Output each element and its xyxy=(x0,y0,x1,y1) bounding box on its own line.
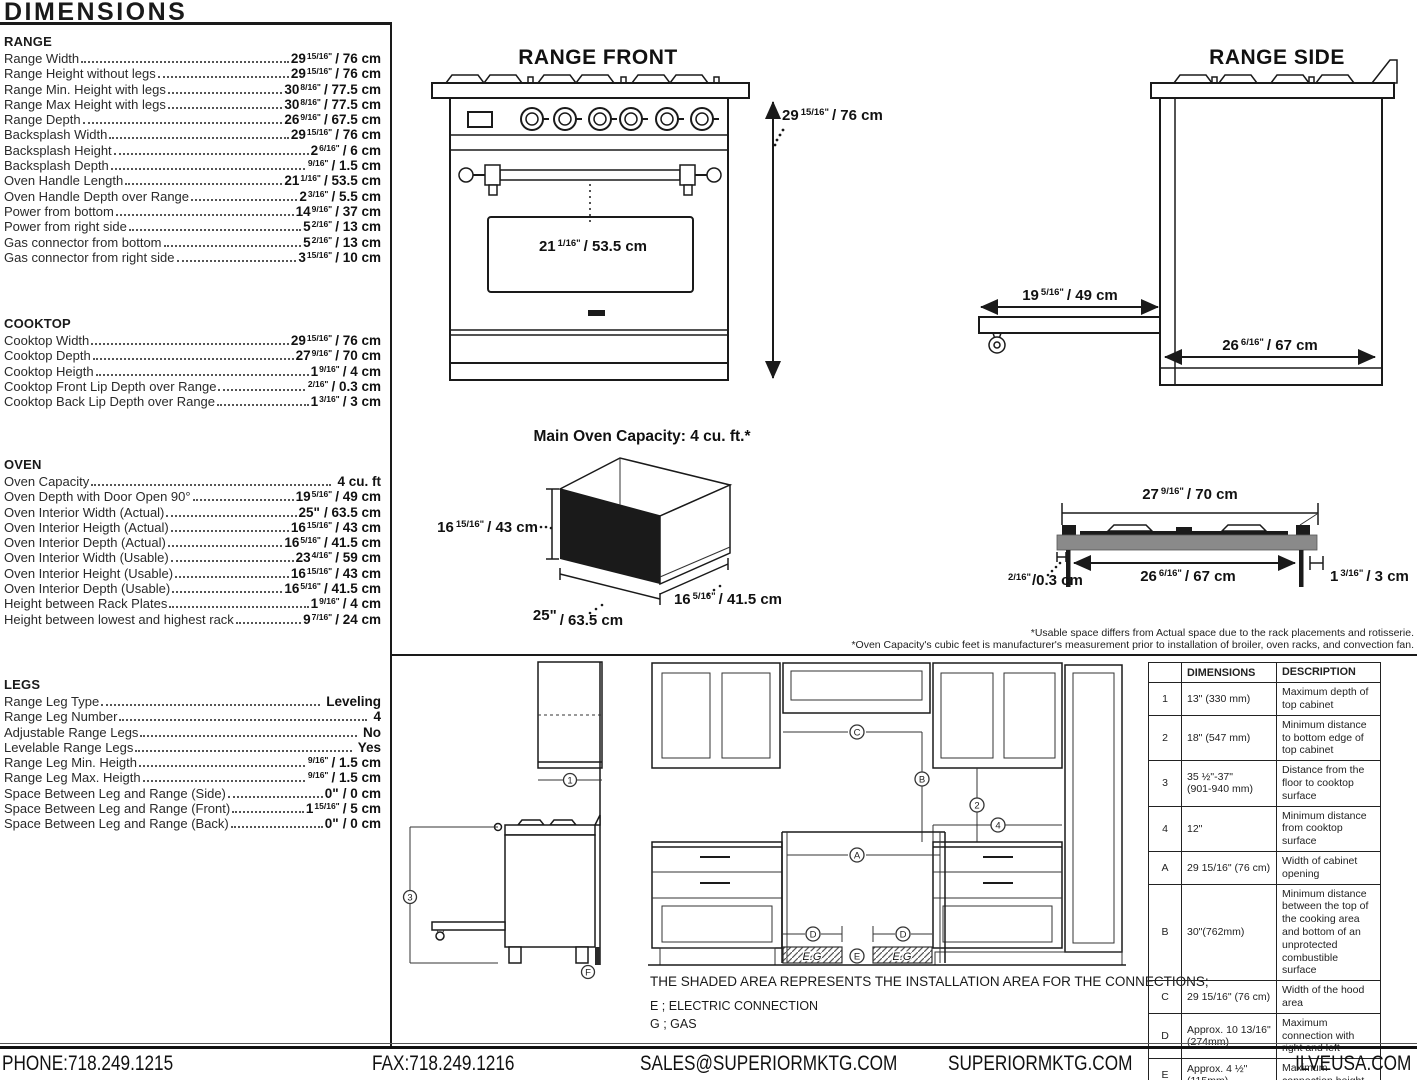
row-id: D xyxy=(1149,1013,1182,1058)
dotted-leader xyxy=(236,622,301,624)
spec-value: 211/16"/ 53.5 cm xyxy=(284,173,381,188)
spec-label: Space Between Leg and Range (Front) xyxy=(4,801,230,816)
row-dimension: Approx. 10 13/16"(274mm) xyxy=(1182,1013,1277,1058)
spec-value: 25"/ 63.5 cm xyxy=(299,505,381,520)
spec-value: 165/16"/ 41.5 cm xyxy=(284,581,381,596)
leader-dots xyxy=(774,129,785,147)
legs-specs: LEGS Range Leg Type Leveling Range Leg N… xyxy=(4,677,381,832)
marker-1: 1 xyxy=(567,776,572,787)
spec-row: Backsplash Depth 9/16"/ 1.5 cm xyxy=(4,158,381,173)
spec-value: 165/16"/ 41.5 cm xyxy=(284,535,381,550)
spec-value: 0"/ 0 cm xyxy=(325,816,381,831)
oven-capacity-diagram: Main Oven Capacity: 4 cu. ft.* 1615/16"/… xyxy=(420,422,810,627)
range-side-icon xyxy=(432,815,600,963)
oven-specs: OVEN Oven Capacity 4 cu. ft Oven Depth w… xyxy=(4,457,381,627)
table-row: A 29 15/16" (76 cm) Width of cabinet ope… xyxy=(1149,851,1381,884)
spec-label: Cooktop Width xyxy=(4,333,89,348)
spec-label: Range Depth xyxy=(4,112,81,127)
dotted-leader xyxy=(177,260,297,262)
spec-value: Yes xyxy=(354,740,381,755)
spec-value: 195/16"/ 49 cm xyxy=(296,489,381,504)
dotted-leader xyxy=(168,107,282,109)
spec-label: Power from right side xyxy=(4,219,127,234)
spec-label: Levelable Range Legs xyxy=(4,740,133,755)
table-row: 2 18" (547 mm) Minimum distance to botto… xyxy=(1149,715,1381,760)
spec-label: Range Leg Type xyxy=(4,694,99,709)
spec-label: Backsplash Depth xyxy=(4,158,109,173)
spec-label: Range Width xyxy=(4,51,79,66)
oven-width-label: 25"/ 63.5 cm xyxy=(533,607,623,629)
spec-label: Backsplash Width xyxy=(4,127,107,142)
spec-label: Height between Rack Plates xyxy=(4,596,167,611)
range-front-diagram: RANGE FRONT xyxy=(400,38,905,390)
dotted-leader xyxy=(135,750,351,752)
dotted-leader xyxy=(101,704,320,706)
spec-label: Range Leg Number xyxy=(4,709,117,724)
spec-value: 269/16"/ 67.5 cm xyxy=(284,112,381,127)
spec-row: Cooktop Depth 279/16"/ 70 cm xyxy=(4,348,381,363)
spec-row: Power from bottom 149/16"/ 37 cm xyxy=(4,204,381,219)
dotted-leader xyxy=(91,343,289,345)
dotted-leader xyxy=(168,92,282,94)
marker-3: 3 xyxy=(407,893,412,904)
dotted-leader xyxy=(166,515,296,517)
spec-value: 315/16"/ 10 cm xyxy=(298,250,381,265)
spec-row: Oven Capacity 4 cu. ft xyxy=(4,474,381,489)
row-id: E xyxy=(1149,1059,1182,1080)
handle-length-label: 211/16"/ 53.5 cm xyxy=(539,238,647,255)
id-column-header xyxy=(1149,663,1182,683)
front-lip-mark xyxy=(1057,552,1066,562)
dotted-leader xyxy=(193,499,294,501)
row-dimension: 35 ½"-37"(901-940 mm) xyxy=(1182,761,1277,806)
spec-value: 9/16"/ 1.5 cm xyxy=(307,158,381,173)
installation-note: THE SHADED AREA REPRESENTS THE INSTALLAT… xyxy=(650,974,1209,989)
marker-B: B xyxy=(919,775,925,786)
spec-list: Range Width 2915/16"/ 76 cm Range Height… xyxy=(4,51,381,265)
cooktop-specs: COOKTOP Cooktop Width 2915/16"/ 76 cm Co… xyxy=(4,316,381,409)
oven-depth-label: 165/16"/ 41.5 cm xyxy=(674,591,782,608)
section-heading: OVEN xyxy=(4,457,381,472)
door-open-label: 195/16"/ 49 cm xyxy=(1022,287,1118,304)
left-base-cabinet xyxy=(652,842,782,965)
oven-capacity-title: Main Oven Capacity: 4 cu. ft.* xyxy=(533,428,751,445)
dotted-leader xyxy=(171,530,289,532)
spec-label: Range Leg Min. Heigth xyxy=(4,755,137,770)
marker-D-left: D xyxy=(810,930,817,941)
spec-value: 97/16"/ 24 cm xyxy=(303,612,381,627)
table-row: B 30"(762mm) Minimum distance between th… xyxy=(1149,884,1381,981)
row-id: B xyxy=(1149,884,1182,981)
horizontal-divider xyxy=(390,654,1417,656)
back-lip-label: 13/16"/ 3 cm xyxy=(1330,568,1409,585)
dotted-leader xyxy=(114,153,309,155)
spec-label: Oven Interior Depth (Actual) xyxy=(4,535,166,550)
spec-label: Gas connector from right side xyxy=(4,250,175,265)
dotted-leader xyxy=(139,765,305,767)
legend-electric: E ; ELECTRIC CONNECTION xyxy=(650,999,818,1013)
spec-value: 13/16"/ 3 cm xyxy=(311,394,381,409)
row-dimension: 13" (330 mm) xyxy=(1182,683,1277,716)
burner-grates-icon xyxy=(1174,75,1354,83)
spec-row: Oven Interior Depth (Actual) 165/16"/ 41… xyxy=(4,535,381,550)
dotted-leader xyxy=(140,735,357,737)
spec-value: No xyxy=(359,725,381,740)
spec-label: Range Leg Max. Heigth xyxy=(4,770,141,785)
table-row: C 29 15/16" (76 cm) Width of the hood ar… xyxy=(1149,981,1381,1014)
spec-value: 52/16"/ 13 cm xyxy=(303,235,381,250)
footer-fax: FAX:718.249.1216 xyxy=(372,1051,515,1076)
inner-width-label: 266/16"/ 67 cm xyxy=(1140,568,1236,585)
dotted-leader xyxy=(91,484,331,486)
spec-value: 19/16"/ 4 cm xyxy=(311,596,381,611)
dimensions-column-header: DIMENSIONS xyxy=(1182,663,1277,683)
spec-label: Cooktop Heigth xyxy=(4,364,94,379)
row-description: Minimum distance between the top of the … xyxy=(1277,884,1381,981)
dotted-leader xyxy=(175,576,289,578)
spec-label: Range Max Height with legs xyxy=(4,97,166,112)
spec-row: Oven Depth with Door Open 90° 195/16"/ 4… xyxy=(4,489,381,504)
spec-row: Range Leg Number 4 xyxy=(4,709,381,724)
section-heading: COOKTOP xyxy=(4,316,381,331)
dotted-leader xyxy=(169,606,308,608)
row-dimension: 18" (547 mm) xyxy=(1182,715,1277,760)
spec-row: Range Leg Min. Heigth 9/16"/ 1.5 cm xyxy=(4,755,381,770)
spec-label: Oven Interior Width (Actual) xyxy=(4,505,164,520)
row-dimension: 29 15/16" (76 cm) xyxy=(1182,851,1277,884)
dotted-leader xyxy=(231,826,323,828)
spec-value: 4 cu. ft xyxy=(333,474,381,489)
dotted-leader xyxy=(109,137,289,139)
range-front-title: RANGE FRONT xyxy=(518,46,678,69)
dotted-leader xyxy=(129,229,301,231)
brand-badge xyxy=(588,310,605,316)
footer-phone: PHONE:718.249.1215 xyxy=(2,1051,173,1076)
spec-value: 1615/16"/ 43 cm xyxy=(291,566,381,581)
row-description: Width of cabinet opening xyxy=(1277,851,1381,884)
spec-row: Range Min. Height with legs 308/16"/ 77.… xyxy=(4,82,381,97)
marker-E: E xyxy=(854,952,860,963)
spec-label: Oven Interior Height (Usable) xyxy=(4,566,173,581)
spec-row: Cooktop Heigth 19/16"/ 4 cm xyxy=(4,364,381,379)
burner-grates-icon xyxy=(446,75,719,83)
spec-value: 308/16"/ 77.5 cm xyxy=(284,82,381,97)
range-side-diagram: RANGE SIDE 195/16"/ 49 cm 266/16"/ 67 cm xyxy=(950,38,1417,390)
spec-label: Backsplash Height xyxy=(4,143,112,158)
spec-label: Oven Handle Length xyxy=(4,173,123,188)
install-side-diagram: 1 3 F xyxy=(398,658,648,988)
tall-cabinet xyxy=(1065,665,1122,952)
eg-label-right: E.G xyxy=(893,951,912,963)
spec-value: 23/16"/ 5.5 cm xyxy=(299,189,381,204)
vertical-divider xyxy=(390,22,392,1047)
eg-label-left: E.G xyxy=(803,951,822,963)
spec-row: Space Between Leg and Range (Front) 115/… xyxy=(4,801,381,816)
marker-A: A xyxy=(854,851,861,862)
spec-label: Oven Handle Depth over Range xyxy=(4,189,189,204)
spec-row: Range Width 2915/16"/ 76 cm xyxy=(4,51,381,66)
spec-value: 2915/16"/ 76 cm xyxy=(291,66,381,81)
spec-row: Backsplash Height 26/16"/ 6 cm xyxy=(4,143,381,158)
spec-row: Gas connector from bottom 52/16"/ 13 cm xyxy=(4,235,381,250)
spec-row: Space Between Leg and Range (Back) 0"/ 0… xyxy=(4,816,381,831)
spec-label: Cooktop Front Lip Depth over Range xyxy=(4,379,216,394)
spec-label: Range Min. Height with legs xyxy=(4,82,166,97)
footnote-line1: *Usable space differs from Actual space … xyxy=(851,627,1414,639)
footer-email[interactable]: SALES@SUPERIORMKTG.COM xyxy=(640,1051,897,1076)
leader-dots xyxy=(540,526,553,530)
spec-value: 234/16"/ 59 cm xyxy=(296,550,381,565)
spec-label: Height between lowest and highest rack xyxy=(4,612,234,627)
spec-row: Oven Interior Width (Actual) 25"/ 63.5 c… xyxy=(4,505,381,520)
spec-value: 2915/16"/ 76 cm xyxy=(291,127,381,142)
spec-label: Adjustable Range Legs xyxy=(4,725,138,740)
table-row: 3 35 ½"-37"(901-940 mm) Distance from th… xyxy=(1149,761,1381,806)
footer-rule-thin xyxy=(0,1043,1417,1044)
dotted-leader xyxy=(116,214,294,216)
spec-row: Range Depth 269/16"/ 67.5 cm xyxy=(4,112,381,127)
display-window xyxy=(468,112,492,127)
dotted-leader xyxy=(218,389,304,391)
dotted-leader xyxy=(119,719,367,721)
spec-row: Oven Handle Depth over Range 23/16"/ 5.5… xyxy=(4,189,381,204)
table-row: 1 13" (330 mm) Maximum depth of top cabi… xyxy=(1149,683,1381,716)
spec-row: Range Height without legs 2915/16"/ 76 c… xyxy=(4,66,381,81)
dotted-leader xyxy=(232,811,304,813)
right-base-cabinet xyxy=(933,842,1122,965)
spec-list: Range Leg Type Leveling Range Leg Number… xyxy=(4,694,381,832)
spec-row: Oven Interior Depth (Usable) 165/16"/ 41… xyxy=(4,581,381,596)
spec-label: Oven Depth with Door Open 90° xyxy=(4,489,191,504)
spec-value: 308/16"/ 77.5 cm xyxy=(284,97,381,112)
dotted-leader xyxy=(111,168,305,170)
front-lip-label: 2/16"/0.3 cm xyxy=(1008,572,1083,589)
dimensions-sheet: DIMENSIONS RANGE Range Width 2915/16"/ 7… xyxy=(0,0,1417,1080)
spec-label: Cooktop Depth xyxy=(4,348,91,363)
row-id: 4 xyxy=(1149,806,1182,851)
spec-value: 9/16"/ 1.5 cm xyxy=(307,770,381,785)
spec-list: Oven Capacity 4 cu. ft Oven Depth with D… xyxy=(4,474,381,627)
cooktop-width-label: 279/16"/ 70 cm xyxy=(1142,486,1238,503)
spec-value: 2915/16"/ 76 cm xyxy=(291,51,381,66)
row-dimension: 12" xyxy=(1182,806,1277,851)
dotted-leader xyxy=(158,76,289,78)
row-id: 1 xyxy=(1149,683,1182,716)
dotted-leader xyxy=(96,374,309,376)
title-underline xyxy=(0,22,391,25)
spec-row: Space Between Leg and Range (Side) 0"/ 0… xyxy=(4,786,381,801)
spec-row: Cooktop Back Lip Depth over Range 13/16"… xyxy=(4,394,381,409)
spec-value: 19/16"/ 4 cm xyxy=(311,364,381,379)
spec-row: Levelable Range Legs Yes xyxy=(4,740,381,755)
backsplash-icon xyxy=(1372,60,1397,83)
dimensions-table: DIMENSIONS DESCRIPTION 1 13" (330 mm) Ma… xyxy=(1148,662,1381,1080)
connection-strip xyxy=(595,947,600,965)
spec-row: Backsplash Width 2915/16"/ 76 cm xyxy=(4,127,381,142)
cooktop-profile-diagram: 279/16"/ 70 cm 2/16"/0.3 cm 266/16"/ 67 … xyxy=(1000,478,1417,603)
row-description: Width of the hood area xyxy=(1277,981,1381,1014)
spec-label: Range Height without legs xyxy=(4,66,156,81)
dotted-leader xyxy=(125,183,282,185)
dotted-leader xyxy=(191,199,297,201)
spec-value: 2915/16"/ 76 cm xyxy=(291,333,381,348)
spec-row: Power from right side 52/16"/ 13 cm xyxy=(4,219,381,234)
spec-label: Space Between Leg and Range (Side) xyxy=(4,786,226,801)
spec-row: Height between lowest and highest rack 9… xyxy=(4,612,381,627)
spec-value: 52/16"/ 13 cm xyxy=(303,219,381,234)
spec-label: Gas connector from bottom xyxy=(4,235,162,250)
spec-label: Oven Capacity xyxy=(4,474,89,489)
spec-value: 1615/16"/ 43 cm xyxy=(291,520,381,535)
footer-website-ilve[interactable]: ILVEUSA.COM xyxy=(1295,1051,1411,1076)
description-column-header: DESCRIPTION xyxy=(1277,663,1381,683)
marker-F: F xyxy=(585,968,591,979)
spec-value: 4 xyxy=(369,709,381,724)
dotted-leader xyxy=(168,545,282,547)
marker-D-right: D xyxy=(900,930,907,941)
footnotes: *Usable space differs from Actual space … xyxy=(851,627,1414,651)
row-id: 3 xyxy=(1149,761,1182,806)
row-description: Minimum distance from cooktop surface xyxy=(1277,806,1381,851)
spec-row: Range Leg Type Leveling xyxy=(4,694,381,709)
marker-2: 2 xyxy=(974,801,979,812)
oven-height-label: 1615/16"/ 43 cm xyxy=(437,519,538,536)
row-id: C xyxy=(1149,981,1182,1014)
spec-row: Oven Handle Length 211/16"/ 53.5 cm xyxy=(4,173,381,188)
spec-value: 115/16"/ 5 cm xyxy=(306,801,381,816)
dotted-leader xyxy=(143,780,305,782)
section-heading: LEGS xyxy=(4,677,381,692)
spec-value: 9/16"/ 1.5 cm xyxy=(307,755,381,770)
open-door-icon xyxy=(979,317,1160,333)
row-dimension: 29 15/16" (76 cm) xyxy=(1182,981,1277,1014)
row-dimension: Approx. 4 ½"(115mm) xyxy=(1182,1059,1277,1080)
spec-list: Cooktop Width 2915/16"/ 76 cm Cooktop De… xyxy=(4,333,381,409)
range-height-label: 2915/16"/ 76 cm xyxy=(782,107,883,124)
section-heading: RANGE xyxy=(4,34,381,49)
spec-row: Oven Interior Width (Usable) 234/16"/ 59… xyxy=(4,550,381,565)
range-specs: RANGE Range Width 2915/16"/ 76 cm Range … xyxy=(4,34,381,265)
legend-gas: G ; GAS xyxy=(650,1017,697,1031)
row-id: A xyxy=(1149,851,1182,884)
spec-row: Cooktop Width 2915/16"/ 76 cm xyxy=(4,333,381,348)
cooktop-burners-icon xyxy=(1062,514,1317,535)
dotted-leader xyxy=(83,122,283,124)
spec-row: Adjustable Range Legs No xyxy=(4,725,381,740)
footer-rule xyxy=(0,1046,1417,1049)
marker-C: C xyxy=(854,728,861,739)
row-description: Minimum distance to bottom edge of top c… xyxy=(1277,715,1381,760)
spec-label: Oven Interior Depth (Usable) xyxy=(4,581,170,596)
control-knobs-icon xyxy=(521,108,719,130)
spec-row: Oven Interior Height (Usable) 1615/16"/ … xyxy=(4,566,381,581)
spec-label: Oven Interior Heigth (Actual) xyxy=(4,520,169,535)
spec-label: Cooktop Back Lip Depth over Range xyxy=(4,394,215,409)
spec-label: Power from bottom xyxy=(4,204,114,219)
table-row: 4 12" Minimum distance from cooktop surf… xyxy=(1149,806,1381,851)
row-id: 2 xyxy=(1149,715,1182,760)
footer-website[interactable]: SUPERIORMKTG.COM xyxy=(948,1051,1132,1076)
spec-value: Leveling xyxy=(322,694,381,709)
spec-row: Gas connector from right side 315/16"/ 1… xyxy=(4,250,381,265)
dotted-leader xyxy=(172,591,282,593)
spec-value: 26/16"/ 6 cm xyxy=(311,143,381,158)
dotted-leader xyxy=(217,404,309,406)
range-side-title: RANGE SIDE xyxy=(1209,46,1345,69)
spec-label: Oven Interior Width (Usable) xyxy=(4,550,169,565)
dotted-leader xyxy=(93,358,294,360)
spec-label: Space Between Leg and Range (Back) xyxy=(4,816,229,831)
spec-value: 2/16"/ 0.3 cm xyxy=(307,379,381,394)
dotted-leader xyxy=(228,796,323,798)
spec-row: Cooktop Front Lip Depth over Range 2/16"… xyxy=(4,379,381,394)
dotted-leader xyxy=(81,61,289,63)
marker-4: 4 xyxy=(995,821,1000,832)
range-depth-label: 266/16"/ 67 cm xyxy=(1222,337,1318,354)
row-description: Distance from the floor to cooktop surfa… xyxy=(1277,761,1381,806)
row-description: Maximum depth of top cabinet xyxy=(1277,683,1381,716)
footnote-line2: *Oven Capacity's cubic feet is manufactu… xyxy=(851,639,1414,651)
dotted-leader xyxy=(171,560,294,562)
spec-value: 279/16"/ 70 cm xyxy=(296,348,381,363)
spec-row: Range Leg Max. Heigth 9/16"/ 1.5 cm xyxy=(4,770,381,785)
spec-row: Range Max Height with legs 308/16"/ 77.5… xyxy=(4,97,381,112)
row-dimension: 30"(762mm) xyxy=(1182,884,1277,981)
spec-row: Height between Rack Plates 19/16"/ 4 cm xyxy=(4,596,381,611)
cooktop-slab xyxy=(1057,535,1317,550)
install-elevation-diagram: C B 2 4 xyxy=(648,658,1138,988)
spec-row: Oven Interior Heigth (Actual) 1615/16"/ … xyxy=(4,520,381,535)
spec-value: 0"/ 0 cm xyxy=(325,786,381,801)
spec-value: 149/16"/ 37 cm xyxy=(296,204,381,219)
table-header-row: DIMENSIONS DESCRIPTION xyxy=(1149,663,1381,683)
dotted-leader xyxy=(164,245,302,247)
